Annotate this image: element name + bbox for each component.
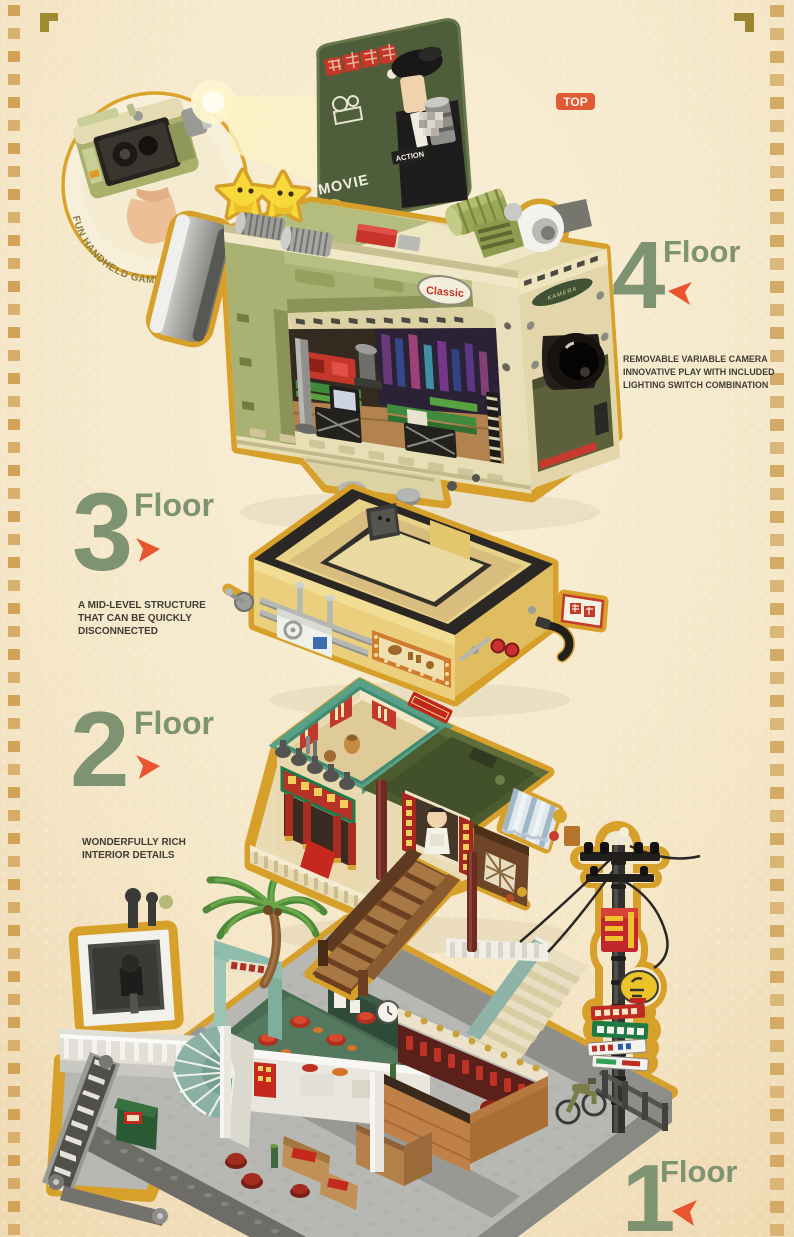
svg-text:A MID-LEVEL STRUCTURE: A MID-LEVEL STRUCTURE (78, 600, 206, 611)
svg-text:WONDERFULLY RICH: WONDERFULLY RICH (82, 837, 186, 848)
svg-text:REMOVABLE VARIABLE CAMERA: REMOVABLE VARIABLE CAMERA (623, 354, 768, 364)
svg-text:THAT CAN BE QUICKLY: THAT CAN BE QUICKLY (78, 613, 192, 624)
svg-text:3: 3 (72, 471, 133, 594)
svg-text:TOP: TOP (563, 95, 587, 109)
svg-text:Floor: Floor (660, 1154, 738, 1189)
svg-text:INTERIOR DETAILS: INTERIOR DETAILS (82, 850, 175, 861)
svg-text:LIGHTING SWITCH COMBINATION: LIGHTING SWITCH COMBINATION (623, 380, 768, 390)
svg-text:Floor: Floor (134, 487, 214, 523)
svg-text:Floor: Floor (134, 705, 214, 741)
svg-text:4: 4 (612, 222, 665, 329)
svg-text:2: 2 (70, 689, 130, 809)
svg-text:DISCONNECTED: DISCONNECTED (78, 626, 158, 637)
svg-text:INNOVATIVE PLAY WITH INCLUDED: INNOVATIVE PLAY WITH INCLUDED (623, 367, 775, 377)
svg-text:Floor: Floor (663, 234, 741, 269)
